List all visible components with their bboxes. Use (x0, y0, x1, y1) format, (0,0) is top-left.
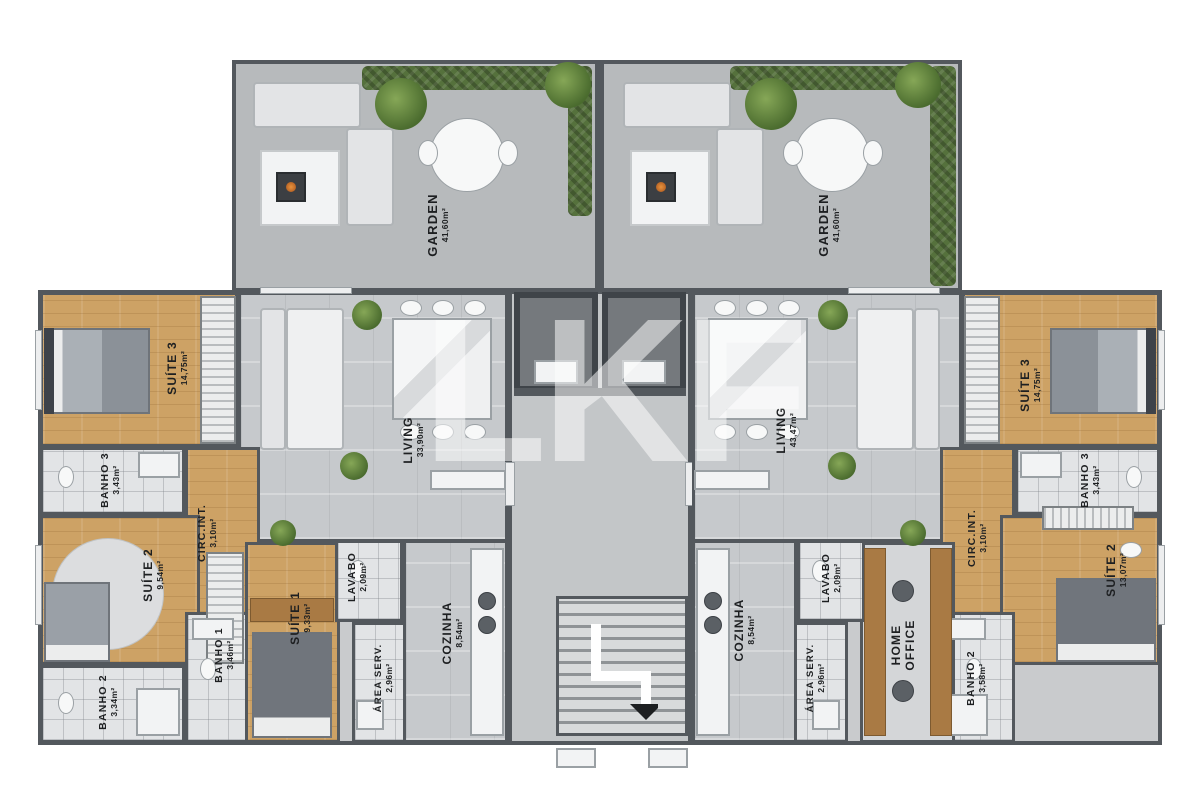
pillow (1120, 542, 1142, 558)
floor-plan: GARDEN 41,60m² GARDEN 41,60m² LIVING 33,… (0, 0, 1200, 792)
dining-chair (432, 424, 454, 440)
shower (138, 452, 180, 478)
bed (1050, 328, 1156, 414)
dining-chair (464, 424, 486, 440)
cooktop-burner (478, 592, 496, 610)
dining-chair (714, 300, 736, 316)
core-wall (514, 388, 686, 396)
toilet (350, 560, 366, 582)
plant (828, 452, 856, 480)
tv-console (430, 470, 506, 490)
garden-sofa (623, 82, 731, 128)
dining-chair (778, 300, 800, 316)
sliding-door-garden-left (260, 287, 352, 294)
palm-plant (545, 62, 591, 108)
palm-plant (895, 62, 941, 108)
dining-chair (778, 424, 800, 440)
dining-chair (746, 300, 768, 316)
cooktop-burner (704, 616, 722, 634)
sofa-seat (286, 308, 344, 450)
office-chair (892, 680, 914, 702)
office-chair (892, 580, 914, 602)
garden-chair (863, 140, 883, 166)
window (1158, 330, 1165, 410)
ac-unit (556, 748, 596, 768)
toilet (58, 466, 74, 488)
garden-chair (783, 140, 803, 166)
closet (1042, 506, 1134, 530)
dining-chair (714, 424, 736, 440)
headboard (1146, 328, 1156, 414)
plant (270, 520, 296, 546)
closet (206, 552, 244, 664)
toilet (200, 658, 216, 680)
tv-console (694, 470, 770, 490)
elevator-car (534, 360, 578, 384)
bed (252, 632, 332, 738)
toilet (812, 560, 828, 582)
cooktop-burner (478, 616, 496, 634)
headboard (44, 328, 54, 414)
office-desk (864, 548, 886, 736)
garden-lounge-chairs (716, 128, 764, 226)
toilet (58, 692, 74, 714)
garden-chair (418, 140, 438, 166)
garden-divider-wall (595, 60, 604, 292)
dining-table (708, 318, 808, 420)
fire-pit (276, 172, 306, 202)
plant (818, 300, 848, 330)
kitchen-counter (470, 548, 504, 736)
washer (812, 700, 840, 730)
dining-chair (400, 300, 422, 316)
room-lavabo-right (797, 540, 865, 622)
bed (44, 328, 150, 414)
garden-chair (498, 140, 518, 166)
washer (356, 700, 384, 730)
wardrobe (200, 296, 236, 444)
toilet (1126, 466, 1142, 488)
window (35, 545, 42, 625)
bed (1056, 578, 1156, 662)
toilet (966, 658, 982, 680)
dining-chair (400, 424, 422, 440)
palm-plant (375, 78, 427, 130)
shower (1020, 452, 1062, 478)
palm-plant (745, 78, 797, 130)
sofa-back (260, 308, 286, 450)
sofa-seat (856, 308, 914, 450)
window (35, 330, 42, 410)
garden-sofa (253, 82, 361, 128)
plant (340, 452, 368, 480)
dresser (250, 598, 334, 622)
plant (352, 300, 382, 330)
sliding-door-garden-right (848, 287, 940, 294)
dining-table (392, 318, 492, 420)
plant (900, 520, 926, 546)
umbrella-table (795, 118, 869, 192)
dining-chair (464, 300, 486, 316)
shower (136, 688, 180, 736)
fire-pit (646, 172, 676, 202)
garden-lounge-chairs (346, 128, 394, 226)
cooktop-burner (704, 592, 722, 610)
dining-chair (432, 300, 454, 316)
window (1158, 545, 1165, 625)
entry-door-left (505, 462, 515, 506)
stair-direction-arrow (586, 616, 658, 720)
umbrella-table (430, 118, 504, 192)
dining-chair (746, 424, 768, 440)
sofa-back (914, 308, 940, 450)
ac-unit (648, 748, 688, 768)
elevator-car (622, 360, 666, 384)
bathroom-sink (192, 618, 234, 640)
wardrobe (964, 296, 1000, 444)
room-lavabo-left (335, 540, 403, 622)
bed (44, 582, 110, 662)
office-desk (930, 548, 952, 736)
kitchen-counter (696, 548, 730, 736)
